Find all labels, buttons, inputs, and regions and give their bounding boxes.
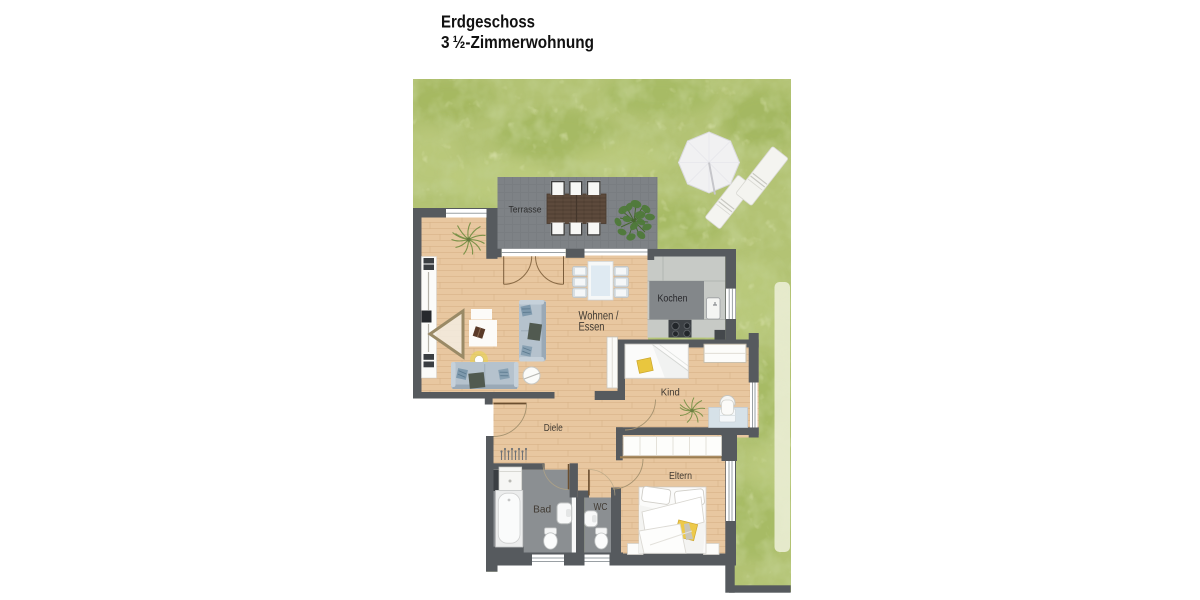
svg-text:Diele: Diele [544, 422, 563, 434]
svg-text:Erdgeschoss: Erdgeschoss [441, 12, 535, 32]
svg-text:3 ½-Zimmerwohnung: 3 ½-Zimmerwohnung [441, 32, 594, 52]
svg-text:Bad: Bad [533, 504, 551, 516]
svg-text:Kochen: Kochen [658, 293, 688, 305]
svg-text:Kind: Kind [661, 387, 680, 399]
svg-text:Terrasse: Terrasse [509, 205, 542, 216]
svg-text:WC: WC [594, 501, 608, 513]
svg-text:Eltern: Eltern [669, 470, 692, 482]
svg-text:Essen: Essen [579, 322, 605, 334]
